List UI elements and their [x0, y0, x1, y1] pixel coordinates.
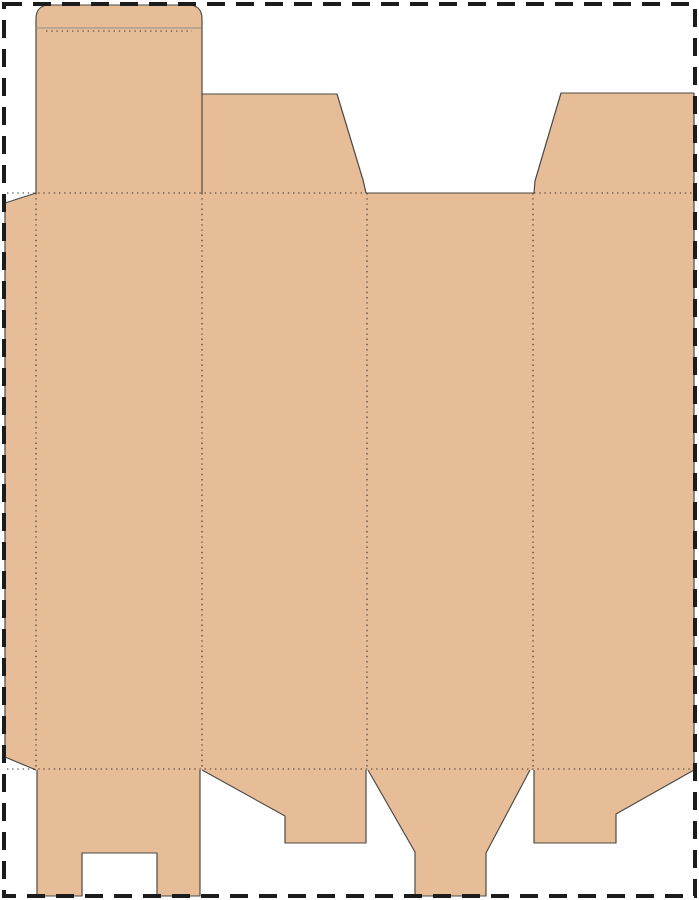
bottom-flap-1 [37, 770, 200, 896]
box-template-svg [0, 0, 699, 900]
dust-flap-right [534, 93, 694, 193]
tuck-flap-top [36, 5, 202, 193]
bottom-flap-4 [534, 770, 694, 843]
dieline-page [0, 0, 699, 900]
main-body [5, 193, 694, 770]
bottom-flap-3 [368, 770, 530, 896]
bottom-flap-2 [202, 770, 366, 843]
